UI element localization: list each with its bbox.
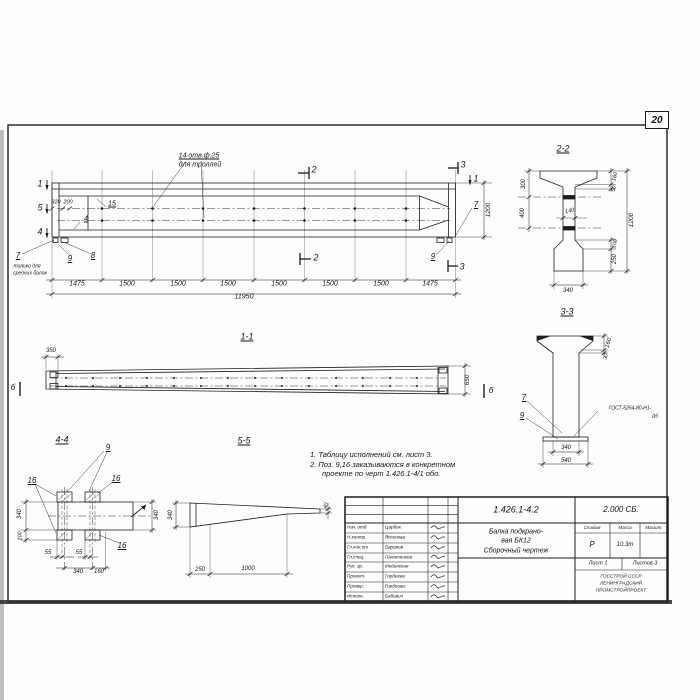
dim-label: средних балок <box>13 272 47 277</box>
pos-label-9: 9 <box>431 253 435 261</box>
pos-label-16: 16 <box>112 475 121 483</box>
plan-view-1-1 <box>20 354 484 398</box>
section-mark-3: 3 <box>460 161 465 170</box>
dim-label: 340 <box>563 288 573 294</box>
dim-label: 1500 <box>220 281 236 288</box>
page-number: 20 <box>645 111 669 129</box>
section-mark-b: б <box>489 387 494 395</box>
detail-4-4 <box>21 451 156 571</box>
dim-label: 200 <box>63 200 72 206</box>
staff-name: Яксенова <box>385 536 405 541</box>
pos-label-7: 7 <box>474 201 478 209</box>
scale-header: Масшт. <box>645 526 662 531</box>
pos-label-8: 8 <box>91 252 95 260</box>
dim-label: 55 <box>45 550 52 556</box>
elevation-view <box>22 161 492 298</box>
pos-label-16: 16 <box>118 542 127 550</box>
dim-label: 650 <box>465 375 472 386</box>
dim-label: 1200 <box>486 203 493 217</box>
holes-callout: 14 отв.ф.25 <box>179 153 220 160</box>
dim-label: 400 <box>520 208 526 218</box>
section-mark-1: 1 <box>473 175 478 184</box>
pos-label-7: 7 <box>16 252 20 260</box>
staff-name: Палатников <box>385 555 412 560</box>
dim-label: 340 <box>73 569 83 575</box>
section-mark-2: 2 <box>311 166 316 175</box>
view-title-5-5: 5-5 <box>237 437 250 446</box>
dim-label: 1000 <box>241 566 254 572</box>
staff-role: Провер. <box>347 585 364 590</box>
dim-label: 1475 <box>422 281 438 288</box>
pos-label-9: 9 <box>68 255 72 263</box>
dim-label: 11950 <box>235 294 254 301</box>
staff-role: Исполн. <box>347 595 364 600</box>
dim-label: 250 <box>612 254 618 264</box>
section-mark-b: б <box>11 384 16 392</box>
stage-header: Стадия <box>584 526 601 531</box>
dim-label: 340 <box>17 509 23 519</box>
section-mark-1: 1 <box>37 180 42 189</box>
drawing-title-line3: Сборочный чертеж <box>484 548 549 555</box>
dim-label: 540 <box>561 458 571 464</box>
dim-label: 1500 <box>170 281 186 288</box>
staff-role: Гл.спец. <box>347 555 364 560</box>
dim-label: 1500 <box>322 281 338 288</box>
sheets-total: Листов 3 <box>633 561 658 567</box>
note-line-1: 1. Таблицу исполнений см. лист 3. <box>310 451 433 459</box>
pos-label-9: 9 <box>520 412 524 420</box>
weld-spec: ГОСТ-5264-80-Н1- <box>609 407 652 412</box>
pos-label-16: 16 <box>28 477 37 485</box>
view-title-1-1: 1-1 <box>240 333 253 342</box>
series-number: 2.000 СБ. <box>603 506 638 514</box>
note-line-2: 2. Поз. 9,16 заказываются в конкретном <box>310 461 455 469</box>
org-line-1: ГОССТРОЙ СССР <box>600 576 641 581</box>
dim-label: 55 <box>76 550 83 556</box>
staff-role: Н.контр. <box>347 536 366 541</box>
dim-label: 1500 <box>271 281 287 288</box>
staff-name: Гордеева <box>385 585 405 590</box>
dim-label: 1475 <box>69 281 85 288</box>
staff-name: Гордеева <box>385 575 405 580</box>
section-mark-4: 4 <box>37 228 42 237</box>
dim-label: 340 <box>561 445 571 451</box>
view-title-3-3: 3-3 <box>560 308 573 317</box>
org-line-2: ЛЕНИНГРАДСКИЙ <box>600 583 642 588</box>
staff-role: Проект. <box>347 575 365 580</box>
dim-label: 1500 <box>373 281 389 288</box>
staff-role: Гл.кон.от <box>347 546 368 551</box>
dim-label: 1500 <box>119 281 135 288</box>
mass-header: Масса <box>618 526 631 531</box>
section-mark-5: 5 <box>37 204 42 213</box>
staff-name: Мединская <box>385 565 408 570</box>
org-line-3: ПРОМСТРОЙПРОЕКТ <box>596 590 646 595</box>
staff-role: Рук. гр. <box>347 565 363 570</box>
sheet-number: Лист 1 <box>589 561 608 567</box>
dim-label: 300 <box>521 179 527 189</box>
drawing-title-line1: Балка подкрано- <box>489 529 543 536</box>
pos-label-4: 4 <box>84 216 88 223</box>
dim-label: 320 <box>51 200 60 206</box>
staff-name: Баранов <box>385 546 403 551</box>
doc-number: 1.426.1-4.2 <box>493 506 539 515</box>
section-mark-2: 2 <box>313 254 318 263</box>
dim-label: 350 <box>46 348 56 354</box>
dim-label: 1200 <box>629 213 636 227</box>
dim-label: только для <box>13 265 40 270</box>
drawing-sheet: 14 отв.ф.25для троллей223315413202001547… <box>0 0 700 700</box>
weld-spec: Δ6 <box>652 415 658 420</box>
drawing-title-line2: вая БК12 <box>501 538 531 545</box>
dim-label: 160 <box>94 569 104 575</box>
pos-label-9: 9 <box>106 444 110 452</box>
section-mark-3: 3 <box>459 263 464 272</box>
stage-value: Р <box>589 541 594 549</box>
view-title-4-4: 4-4 <box>55 436 68 445</box>
staff-name: Бабович <box>385 595 403 600</box>
dim-label: 340 <box>168 510 174 520</box>
pos-label-15: 15 <box>108 201 116 208</box>
staff-name: Царбак <box>385 526 401 531</box>
dim-label: 100 <box>18 531 24 540</box>
dim-label: 250 <box>195 567 205 573</box>
view-title-2-2: 2-2 <box>556 145 569 154</box>
dim-label: 340 <box>154 510 160 520</box>
pos-label-7: 7 <box>522 394 526 402</box>
mass-value: 10,3т <box>617 542 634 548</box>
note-line-3: проекте по черт 1.426.1-4/1 обо. <box>322 470 440 478</box>
scan-bottom-artifact <box>0 600 672 604</box>
staff-role: Нач. отд <box>347 526 366 531</box>
holes-callout: для троллей <box>179 162 222 169</box>
